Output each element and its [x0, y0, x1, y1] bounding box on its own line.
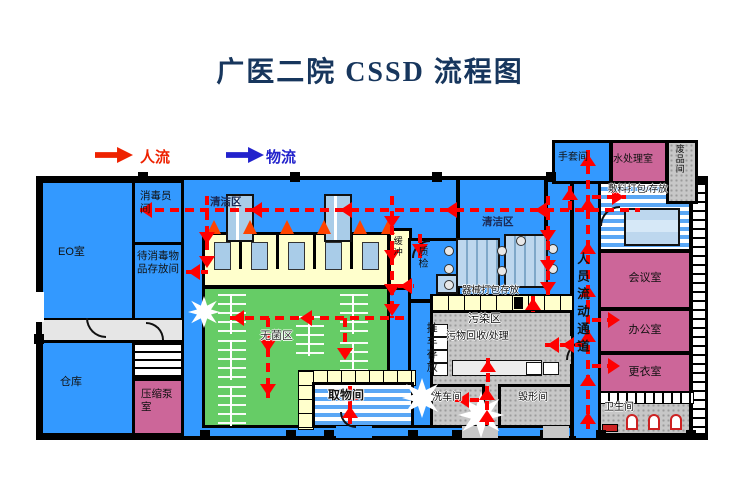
flow-arrow-line — [230, 316, 410, 320]
flow-arrowhead — [535, 202, 547, 218]
stairs — [132, 340, 184, 380]
washer-machine — [288, 242, 305, 270]
flow-arrowhead — [580, 412, 596, 424]
flow-arrowhead — [580, 374, 596, 386]
wall-column — [324, 430, 334, 440]
flow-arrowhead — [260, 384, 276, 396]
stool — [497, 246, 507, 256]
room-quality-check-label: 质检 — [415, 246, 427, 270]
room-to-disinfect-storage-label: 待消毒物品存放间 — [137, 250, 181, 275]
urinal-icon — [626, 414, 638, 430]
destruction-room-label: 毁形间 — [518, 392, 548, 404]
washer-divider-wall — [276, 233, 279, 269]
flow-arrowhead — [480, 360, 496, 372]
room-meeting-label: 会议室 — [598, 272, 692, 285]
flow-arrowhead — [479, 388, 495, 400]
sink — [526, 362, 542, 375]
wall-column — [686, 430, 696, 440]
flow-arrowhead — [340, 202, 352, 218]
room-glove-label: 手套间 — [558, 152, 588, 164]
packing-table — [456, 238, 500, 288]
wall — [430, 384, 484, 387]
flow-arrowhead — [188, 264, 200, 280]
slide-canvas: 广医二院 CSSD 流程图 人流 物流 EO室 消毒员间 待消毒物品存放间 仓库… — [0, 0, 740, 500]
washer-machine — [214, 242, 231, 270]
room-toilet-label: 卫生间 — [604, 402, 634, 414]
storage-rack — [218, 386, 246, 426]
flow-arrowhead — [540, 230, 556, 242]
clean-area-right-label: 清洁区 — [482, 216, 514, 229]
flow-arrowhead — [199, 232, 215, 244]
corridor-wall — [570, 364, 574, 436]
flow-arrowhead — [342, 406, 358, 418]
closed-window-cell — [514, 297, 523, 309]
flow-arrowhead — [384, 284, 400, 296]
pass-through-window-row — [430, 294, 574, 312]
room-eo — [40, 180, 136, 322]
washer-machine — [251, 242, 268, 270]
room-buffer-label: 缓冲 — [392, 236, 403, 258]
flow-arrowhead — [540, 282, 556, 294]
door-opening — [34, 292, 44, 322]
wall-column — [408, 430, 418, 440]
legend-material-label: 物流 — [266, 146, 296, 167]
waste-recycle-label: 污物回收/处理 — [446, 331, 509, 343]
flame-icon — [317, 220, 331, 234]
people-flow-arrow-icon — [95, 147, 133, 163]
washer-divider-wall — [313, 233, 316, 269]
wall — [498, 384, 574, 387]
contaminated-area-label: 污染区 — [468, 313, 501, 326]
room-scrap-label: 废品间 — [674, 144, 685, 174]
flow-arrowhead — [525, 298, 541, 310]
wall-column — [286, 430, 296, 440]
material-flow-arrow-icon — [226, 147, 264, 163]
room-pickup-label: 取物间 — [328, 388, 364, 402]
page-title: 广医二院 CSSD 流程图 — [0, 50, 740, 90]
cart-wash-room-label: 洗车间 — [432, 392, 462, 404]
stool — [444, 280, 454, 290]
wall-column — [34, 334, 44, 344]
flow-arrowhead — [337, 348, 353, 360]
room-disinfection-staff-label: 消毒员间 — [140, 190, 176, 215]
washer-machine — [325, 242, 342, 270]
flow-arrowhead — [199, 256, 215, 268]
wall-column — [200, 430, 210, 440]
room-warehouse-label: 仓库 — [60, 376, 82, 389]
door-opening — [543, 426, 569, 438]
flow-arrowhead — [562, 337, 574, 353]
room-eo-label: EO室 — [58, 246, 85, 259]
wall-column — [546, 172, 556, 182]
flame-icon — [280, 220, 294, 234]
room-office-label: 办公室 — [598, 324, 692, 337]
flow-arrowhead — [232, 310, 244, 326]
wall-column — [432, 172, 442, 182]
personnel-corridor-label: 人员流动通道 — [574, 252, 589, 357]
wall-column — [138, 172, 148, 182]
room-dressing-pack-label: 敷料打包/存放 — [608, 184, 688, 195]
room-cart-storage-label: 推车存放 — [424, 322, 437, 374]
flow-arrowhead — [580, 198, 596, 210]
flow-arrowhead — [384, 216, 400, 228]
stool — [497, 266, 507, 276]
sink — [543, 362, 559, 375]
room-changing-label: 更衣室 — [598, 366, 692, 379]
flow-arrowhead — [445, 202, 457, 218]
flow-arrowhead — [400, 278, 412, 294]
stool — [444, 246, 454, 256]
stool — [516, 236, 526, 246]
wall-column — [452, 430, 462, 440]
room-compressor-pump-label: 压缩泵室 — [141, 388, 177, 413]
flow-arrowhead — [250, 202, 262, 218]
flow-arrowhead — [547, 337, 559, 353]
room-warehouse — [40, 340, 136, 436]
clean-area-left-label: 清洁区 — [210, 196, 242, 209]
flow-arrowhead — [479, 410, 495, 422]
legend-people-label: 人流 — [140, 146, 170, 167]
wall — [498, 384, 501, 428]
washer-machine — [362, 242, 379, 270]
flame-icon — [353, 220, 367, 234]
flow-arrowhead — [562, 188, 578, 200]
wall-column — [596, 430, 606, 440]
wall-column — [290, 172, 300, 182]
instrument-pack-storage-label: 器械打包存放 — [462, 285, 519, 296]
flame-icon — [243, 220, 257, 234]
room-sterile-area-label: 无菌区 — [260, 330, 293, 343]
flow-arrowhead — [384, 304, 400, 316]
urinal-icon — [670, 414, 682, 430]
flow-arrowhead — [540, 260, 556, 272]
stool — [444, 264, 454, 274]
dressing-table — [624, 208, 680, 246]
storage-rack — [218, 340, 246, 380]
flow-arrowhead — [300, 310, 312, 326]
urinal-icon — [648, 414, 660, 430]
room-water-treatment-label: 水处理室 — [613, 154, 653, 166]
